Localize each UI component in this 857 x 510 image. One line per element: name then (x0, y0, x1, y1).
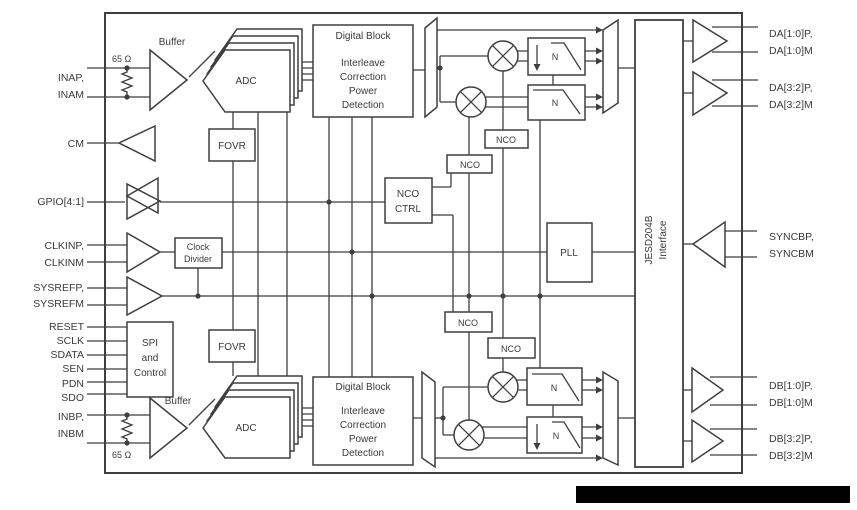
buffer-bottom-label: Buffer (165, 396, 192, 407)
nco-ctrl-block (385, 178, 432, 223)
digital-block-bottom-title: Digital Block (335, 382, 391, 393)
pin-label-inap: INAP, (58, 72, 84, 84)
pin-label-clkinm: CLKINM (44, 257, 84, 269)
decimation-bottom-2-label: N (553, 431, 560, 441)
sysref-buffer (127, 277, 162, 315)
mux-top-post (603, 20, 618, 113)
clock-divider-label-1: Clock (187, 242, 210, 252)
pin-label-da32p: DA[3:2]P, (769, 82, 813, 94)
pin-label-sysrefm: SYSREFM (33, 298, 84, 310)
digital-block-bottom-line2: Interleave (341, 406, 385, 417)
mux-input-arrows (596, 27, 603, 462)
digital-block-bottom-line3: Correction (340, 420, 386, 431)
wires-bottom-channel (413, 380, 635, 458)
da32-output-buffer (693, 72, 727, 115)
pin-label-da32m: DA[3:2]M (769, 99, 813, 111)
adc-top-stack (203, 29, 302, 112)
db32-output-buffer (692, 420, 723, 462)
pin-label-clkinp: CLKINP, (45, 240, 85, 252)
pin-label-syncbm: SYNCBM (769, 248, 814, 260)
da10-output-buffer (693, 20, 727, 62)
decimation-bottom-1-label: N (551, 383, 558, 393)
digital-block-top-line5: Detection (342, 100, 384, 111)
digital-block-top-line3: Correction (340, 72, 386, 83)
adc-bottom-label: ADC (235, 423, 256, 434)
jesd-label-2: Interface (658, 220, 669, 259)
gpio-buffer-right-triangle (127, 184, 160, 219)
decimation-top-2-label: N (552, 98, 559, 108)
clock-divider-label-2: Divider (184, 254, 212, 264)
jesd-label-1: JESD204B (644, 215, 655, 264)
mux-bottom-post (603, 372, 618, 465)
wires-top-channel (413, 30, 635, 420)
clkin-buffer (127, 233, 160, 272)
pin-label-da10p: DA[1:0]P, (769, 28, 813, 40)
spi-label-3: Control (134, 368, 166, 379)
mux-top-pre (425, 18, 437, 117)
pin-label-db10p: DB[1:0]P, (769, 380, 813, 392)
digital-block-top-title: Digital Block (335, 31, 391, 42)
decimation-top-1-label: N (552, 52, 559, 62)
cm-buffer (119, 126, 155, 161)
buffer-top-label: Buffer (159, 37, 186, 48)
pin-label-pdn: PDN (62, 378, 84, 390)
pin-label-db10m: DB[1:0]M (769, 397, 813, 409)
adc-bottom-stack (203, 376, 302, 458)
pin-label-sysrefp: SYSREFP, (33, 282, 84, 294)
input-buffer-top (150, 50, 187, 110)
fovr-bottom-label: FOVR (218, 342, 246, 353)
gpio-bidir-buffer (127, 178, 160, 219)
pin-label-inbp: INBP, (58, 411, 84, 423)
pin-label-da10m: DA[1:0]M (769, 45, 813, 57)
nco-bottom-1-label: NCO (458, 318, 478, 328)
adc-block-diagram: INAP, INAM CM GPIO[4:1] CLKINP, CLKINM S… (0, 0, 857, 510)
nco-ctrl-label-1: NCO (397, 189, 419, 200)
syncb-input-buffer (693, 222, 725, 267)
nco-top-2-label: NCO (460, 160, 480, 170)
fovr-top-label: FOVR (218, 141, 246, 152)
nco-top-1-label: NCO (496, 135, 516, 145)
diagram-canvas: INAP, INAM CM GPIO[4:1] CLKINP, CLKINM S… (0, 0, 857, 510)
nco-ctrl-label-2: CTRL (395, 204, 422, 215)
nco-bottom-2-label: NCO (501, 344, 521, 354)
pin-label-sen: SEN (62, 363, 84, 375)
digital-block-bottom-line4: Power (349, 434, 378, 445)
pin-label-db32m: DB[3:2]M (769, 450, 813, 462)
pin-label-cm: CM (68, 138, 84, 150)
blocks (119, 18, 727, 467)
pin-label-db32p: DB[3:2]P, (769, 433, 813, 445)
pll-label: PLL (560, 248, 578, 259)
resistor-top-label: 65 Ω (112, 54, 132, 64)
spi-label-2: and (142, 353, 159, 364)
pin-label-syncbp: SYNCBP, (769, 231, 814, 243)
pin-label-sdo: SDO (61, 392, 84, 404)
pin-label-sclk: SCLK (57, 335, 84, 347)
pin-label-sdata: SDATA (51, 349, 84, 361)
gpio-buffer-left-triangle (127, 178, 158, 213)
pin-label-inbm: INBM (58, 428, 84, 440)
adc-top-label: ADC (235, 76, 256, 87)
mux-bottom-pre (422, 372, 435, 467)
resistor-bottom-label: 65 Ω (112, 450, 132, 460)
redaction-bar (576, 486, 850, 503)
input-buffer-bottom (150, 398, 187, 458)
digital-block-bottom-line5: Detection (342, 448, 384, 459)
spi-label-1: SPI (142, 338, 158, 349)
pin-label-gpio: GPIO[4:1] (37, 196, 84, 208)
pin-label-inam: INAM (58, 89, 84, 101)
digital-block-top-line2: Interleave (341, 58, 385, 69)
digital-block-top-line4: Power (349, 86, 378, 97)
pin-label-reset: RESET (49, 321, 85, 333)
